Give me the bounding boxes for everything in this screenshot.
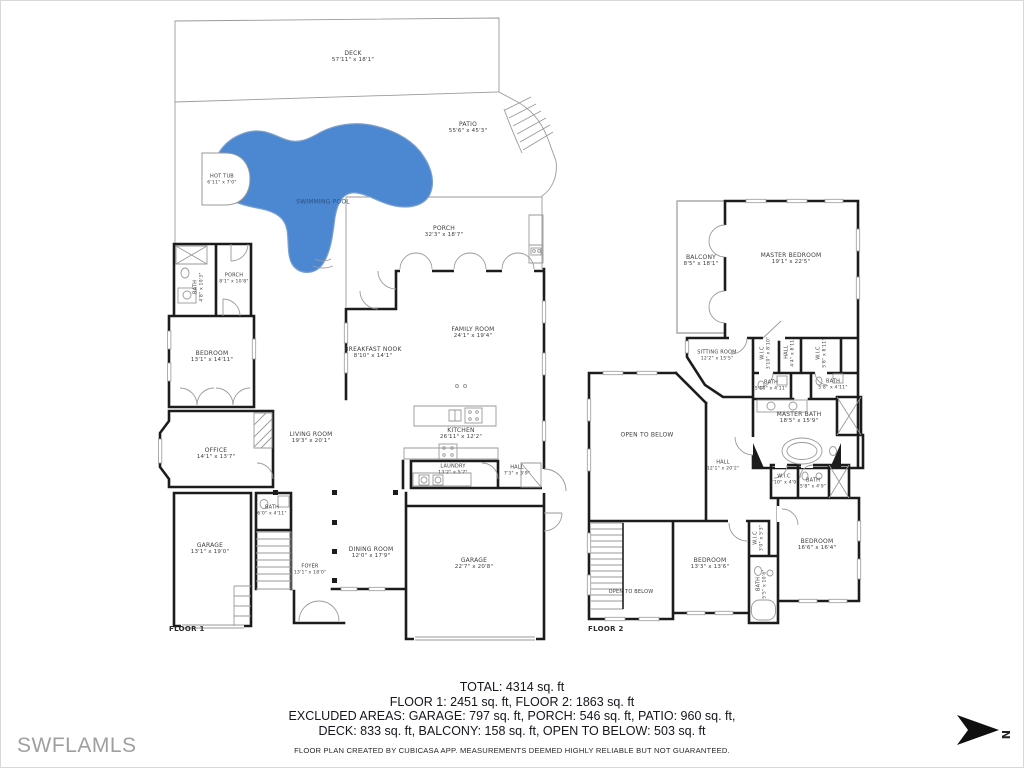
room-name: BREAKFAST NOOK <box>344 346 401 353</box>
patio-stairs <box>504 97 553 153</box>
room-dims: 8'10" x 14'1" <box>354 353 392 360</box>
room-dims: 8'5" x 18'1" <box>684 261 719 268</box>
room-label-family-room: FAMILY ROOM24'1" x 19'4" <box>451 326 494 340</box>
room-label-garage-big: GARAGE22'7" x 20'8" <box>455 557 493 571</box>
room-dims: 7'3" x 3'9" <box>504 471 530 477</box>
room-label-bedroom3: BEDROOM13'3" x 13'6" <box>691 557 729 571</box>
floorplan-page: N DECK57'11" x 18'1" PATIO55'6" x 45'3" … <box>0 0 1024 768</box>
room-dims: 5'8" x 4'9" <box>800 484 826 490</box>
floor1-tag: FLOOR 1 <box>169 625 205 633</box>
room-label-foyer: FOYER13'1" x 18'0" <box>294 564 327 575</box>
room-dims: 6'11" x 7'0" <box>207 180 236 186</box>
summary-excluded-2: DECK: 833 sq. ft, BALCONY: 158 sq. ft, O… <box>1 724 1023 739</box>
room-label-wic-right: W.I.C5'8" x 8'11" <box>816 338 827 367</box>
room-name: BALCONY <box>686 254 716 261</box>
room-dims: 19'3" x 20'1" <box>292 438 330 445</box>
room-name: GARAGE <box>461 557 487 564</box>
room-label-pool: SWIMMING POOL <box>296 199 350 206</box>
room-dims: 12'1" x 20'2" <box>707 466 740 472</box>
room-label-porch-small: PORCH8'1" x 10'8" <box>219 273 248 284</box>
room-label-breakfast-nook: BREAKFAST NOOK8'10" x 14'1" <box>344 346 401 360</box>
room-dims: 6'0" x 4'11" <box>257 511 286 517</box>
room-dims: 55'6" x 45'3" <box>449 128 487 135</box>
room-label-wic-left: W.I.C3'10" x 8'10" <box>760 337 771 370</box>
bathtub-shape <box>782 438 822 464</box>
room-name: MASTER BATH <box>777 411 822 418</box>
room-label-hot-tub: HOT TUB6'11" x 7'0" <box>207 174 236 185</box>
room-name: BEDROOM <box>196 350 229 357</box>
floor1-walls <box>158 244 546 641</box>
room-label-bath-right: BATH5'8" x 4'11" <box>818 379 847 390</box>
room-dims: 22'7" x 20'8" <box>455 564 493 571</box>
room-label-bath-upper: BATH4'8" x 10'3" <box>193 272 204 301</box>
room-name: BEDROOM <box>801 538 834 545</box>
room-name: KITCHEN <box>447 427 474 434</box>
room-dims: 3'10" x 8'10" <box>766 337 772 370</box>
floorplan-drawing: N <box>1 1 1024 768</box>
room-name: PORCH <box>433 225 455 232</box>
room-dims: 5'10" x 4'11" <box>755 386 788 392</box>
room-dims: 13'1" x 19'0" <box>191 549 229 556</box>
room-name: DECK <box>344 50 361 57</box>
room-dims: 24'1" x 19'4" <box>454 333 492 340</box>
room-label-bedroom4: BEDROOM16'6" x 16'4" <box>798 538 836 552</box>
room-label-open-below-upper: OPEN TO BELOW <box>620 432 673 439</box>
room-label-bedroom: BEDROOM13'1" x 14'11" <box>191 350 233 364</box>
room-dims: 13'1" x 18'0" <box>294 570 327 576</box>
room-name: SWIMMING POOL <box>296 199 350 206</box>
disclaimer-text: FLOOR PLAN CREATED BY CUBICASA APP. MEAS… <box>1 744 1023 759</box>
room-dims: 5'8" x 4'11" <box>818 385 847 391</box>
room-name: OPEN TO BELOW <box>620 432 673 439</box>
room-label-sitting-room: SITTING ROOM12'2" x 15'5" <box>697 350 736 361</box>
room-name: OFFICE <box>205 447 228 454</box>
room-label-dining-room: DINING ROOM12'0" x 17'9" <box>349 546 394 560</box>
summary-floors: FLOOR 1: 2451 sq. ft, FLOOR 2: 1863 sq. … <box>1 695 1023 710</box>
room-label-living-room: LIVING ROOM19'3" x 20'1" <box>289 431 332 445</box>
room-label-bath-left: BATH5'10" x 4'11" <box>755 380 788 391</box>
room-dims: 4'8" x 10'3" <box>199 272 205 301</box>
room-label-patio: PATIO55'6" x 45'3" <box>449 121 487 135</box>
room-name: LIVING ROOM <box>289 431 332 438</box>
room-dims: 5'8" x 8'11" <box>822 338 828 367</box>
room-label-deck: DECK57'11" x 18'1" <box>332 50 374 64</box>
room-dims: 14'1" x 13'7" <box>197 454 235 461</box>
room-dims: 13'2" x 5'7" <box>438 470 467 476</box>
room-dims: 18'5" x 15'9" <box>780 418 818 425</box>
room-dims: 32'3" x 18'7" <box>425 232 463 239</box>
room-dims: 8'1" x 10'8" <box>219 279 248 285</box>
interior-stairs-floor2 <box>591 523 623 609</box>
room-dims: 3'10" x 4'9" <box>769 480 798 486</box>
room-name: BEDROOM <box>694 557 727 564</box>
room-name: OPEN TO BELOW <box>609 590 654 596</box>
room-name: PATIO <box>459 121 477 128</box>
room-label-hall-upper: HALL4'4" x 8'11" <box>784 337 795 366</box>
area-summary: TOTAL: 4314 sq. ft FLOOR 1: 2451 sq. ft,… <box>1 680 1023 759</box>
room-name: GARAGE <box>197 542 223 549</box>
room-dims: 57'11" x 18'1" <box>332 57 374 64</box>
room-label-open-below-lower: OPEN TO BELOW <box>609 590 654 596</box>
room-label-balcony: BALCONY8'5" x 18'1" <box>684 254 719 268</box>
shower-2 <box>829 465 849 498</box>
room-label-kitchen: KITCHEN26'11" x 12'2" <box>440 427 482 441</box>
floor2-tag: FLOOR 2 <box>588 625 624 633</box>
interior-stairs-floor1 <box>256 532 291 589</box>
watermark-logo: SWFLAMLS <box>17 734 137 758</box>
room-dims: 13'3" x 13'6" <box>691 564 729 571</box>
room-label-bath-small: BATH6'0" x 4'11" <box>257 505 286 516</box>
room-label-hall2: HALL12'1" x 20'2" <box>707 460 740 471</box>
room-label-hall-f1: HALL7'3" x 3'9" <box>504 465 530 476</box>
summary-total: TOTAL: 4314 sq. ft <box>1 680 1023 695</box>
summary-excluded-1: EXCLUDED AREAS: GARAGE: 797 sq. ft, PORC… <box>1 709 1023 724</box>
room-name: FAMILY ROOM <box>451 326 494 333</box>
room-label-bath-mid: BATH5'8" x 4'9" <box>800 478 826 489</box>
room-label-master-bath: MASTER BATH18'5" x 15'9" <box>777 411 822 425</box>
room-dims: 16'6" x 16'4" <box>798 545 836 552</box>
room-dims: 12'2" x 15'5" <box>701 356 734 362</box>
room-name: MASTER BEDROOM <box>761 252 822 259</box>
room-dims: 26'11" x 12'2" <box>440 434 482 441</box>
room-dims: 13'1" x 14'11" <box>191 357 233 364</box>
room-dims: 4'4" x 8'11" <box>790 337 796 366</box>
kitchen-island <box>414 406 496 426</box>
room-label-wic-tiny: W.I.C3'0" x 5'3" <box>753 525 764 551</box>
room-dims: 3'0" x 5'3" <box>759 525 765 551</box>
room-label-office: OFFICE14'1" x 13'7" <box>197 447 235 461</box>
room-dims: 19'1" x 22'5" <box>772 259 810 266</box>
room-label-laundry: LAUNDRY13'2" x 5'7" <box>438 464 467 475</box>
room-dims: 5'5" x 10'6" <box>762 569 768 598</box>
room-label-porch-rear: PORCH32'3" x 18'7" <box>425 225 463 239</box>
room-label-garage-small: GARAGE13'1" x 19'0" <box>191 542 229 556</box>
room-name: DINING ROOM <box>349 546 394 553</box>
room-label-bath-bottom: BATH5'5" x 10'6" <box>756 569 767 598</box>
room-label-master-bedroom: MASTER BEDROOM19'1" x 22'5" <box>761 252 822 266</box>
room-label-wic-small: W.I.C3'10" x 4'9" <box>769 474 798 485</box>
room-dims: 12'0" x 17'9" <box>352 553 390 560</box>
